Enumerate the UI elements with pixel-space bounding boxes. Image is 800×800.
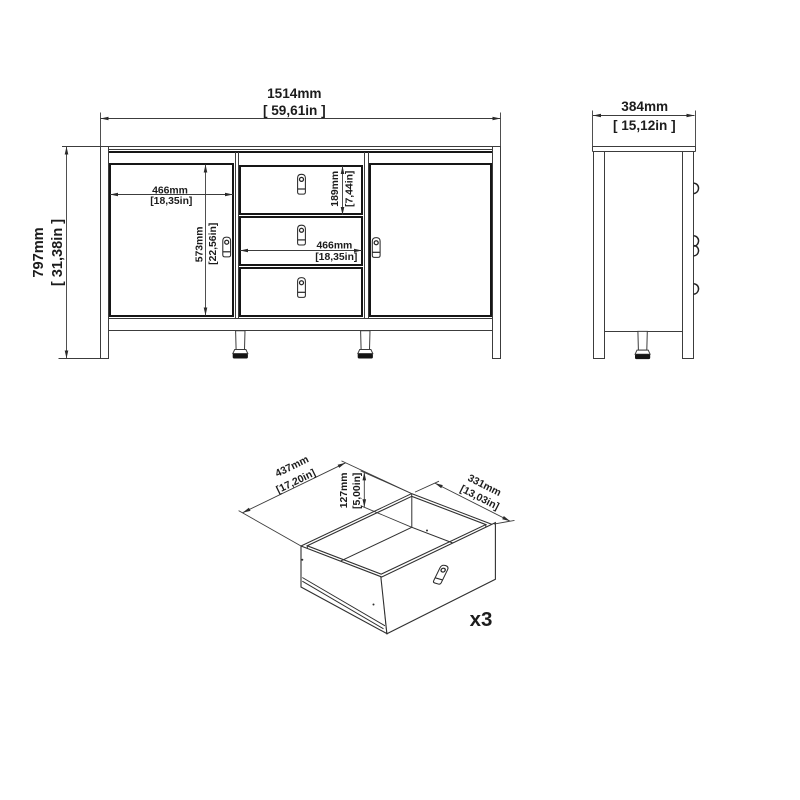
svg-text:[ 31,38in ]: [ 31,38in ] [50, 219, 66, 286]
svg-text:[22,56in]: [22,56in] [208, 223, 219, 265]
svg-text:189mm: 189mm [330, 171, 341, 207]
svg-text:573mm: 573mm [195, 226, 206, 262]
svg-text:[7,44in]: [7,44in] [344, 171, 355, 207]
svg-text:[5,00in]: [5,00in] [352, 473, 363, 509]
svg-text:[18,35in]: [18,35in] [150, 196, 192, 207]
svg-text:466mm: 466mm [316, 240, 352, 251]
svg-text:797mm: 797mm [31, 227, 47, 277]
svg-text:[ 59,61in ]: [ 59,61in ] [263, 103, 326, 118]
svg-text:x3: x3 [470, 608, 493, 631]
svg-text:1514mm: 1514mm [267, 86, 321, 101]
svg-text:384mm: 384mm [621, 99, 668, 114]
svg-text:[18,35in]: [18,35in] [315, 252, 357, 263]
svg-text:[ 15,12in ]: [ 15,12in ] [613, 118, 676, 133]
svg-text:127mm: 127mm [339, 472, 350, 508]
